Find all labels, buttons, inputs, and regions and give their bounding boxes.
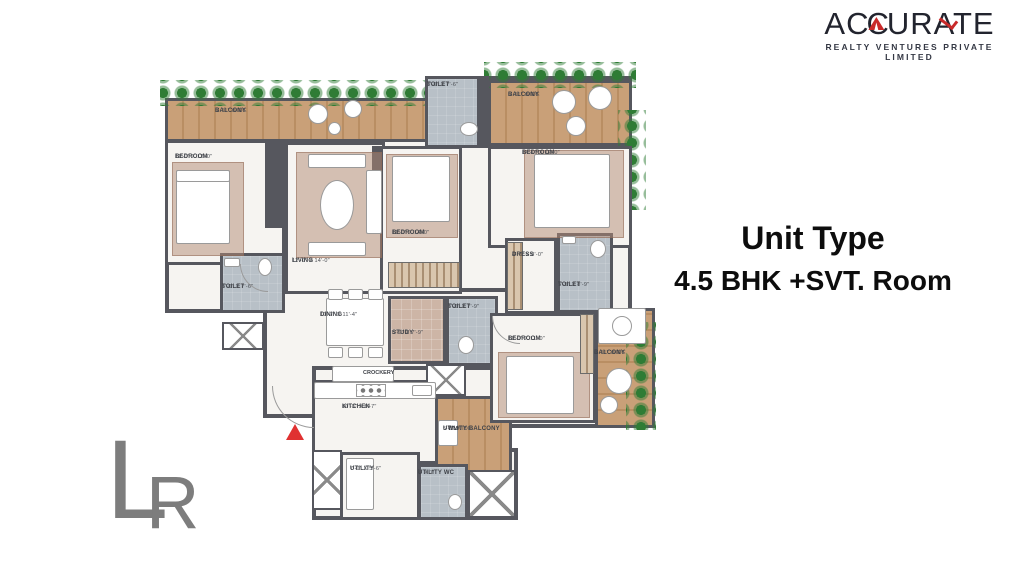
plants-top-left xyxy=(160,80,432,106)
balcony-chair xyxy=(600,396,618,414)
chair xyxy=(348,347,363,358)
bed-pillows xyxy=(176,170,230,182)
kitchen-sink xyxy=(412,385,432,396)
washbasin xyxy=(612,316,632,336)
unit-type-value: 4.5 BHK +SVT. Room xyxy=(660,265,966,297)
chair xyxy=(328,289,343,300)
stove xyxy=(356,384,386,397)
unit-type-block: Unit Type 4.5 BHK +SVT. Room xyxy=(660,220,966,297)
shaft-box xyxy=(222,322,264,350)
wc-fixture xyxy=(458,336,474,354)
balcony-chair xyxy=(588,86,612,110)
chair xyxy=(348,289,363,300)
wardrobe xyxy=(580,314,594,374)
wardrobe xyxy=(388,262,460,288)
chair xyxy=(368,347,383,358)
balcony-chair xyxy=(308,104,328,124)
door-swing xyxy=(272,386,314,428)
brand-logo: ACCURATE REALTY VENTURES PRIVATE LIMITED xyxy=(807,8,1012,62)
plants-top-right xyxy=(484,62,636,88)
balcony-chair xyxy=(552,90,576,114)
balcony-table xyxy=(328,122,341,135)
wc-fixture xyxy=(460,122,478,136)
unit-type-title: Unit Type xyxy=(660,220,966,257)
wall-pillar xyxy=(477,76,488,148)
wc-fixture xyxy=(590,240,606,258)
entry-arrow-icon xyxy=(286,424,304,440)
shaft-box xyxy=(468,470,516,518)
dining-table xyxy=(326,298,384,346)
brand-tagline: REALTY VENTURES PRIVATE LIMITED xyxy=(807,42,1012,62)
bed-furniture xyxy=(506,356,574,414)
bed-furniture xyxy=(534,154,610,228)
sofa xyxy=(308,154,366,168)
basin xyxy=(562,236,576,244)
shaft-box xyxy=(312,450,342,510)
floor-plan: BALCONY5'-11" WIDE BEDROOM11'-0" x 12'-0… xyxy=(160,58,662,538)
bed-furniture xyxy=(392,156,450,222)
brand-part-cc: CC xyxy=(846,6,887,41)
coffee-table xyxy=(320,180,354,230)
brand-part-a: A xyxy=(824,6,846,41)
balcony-table xyxy=(606,368,632,394)
wall-pillar xyxy=(265,142,285,228)
chair xyxy=(328,347,343,358)
sofa xyxy=(366,170,382,234)
balcony-chair xyxy=(344,100,362,118)
sofa xyxy=(308,242,366,256)
brand-name: ACCURATE xyxy=(824,8,994,41)
balcony-table xyxy=(566,116,586,136)
chair xyxy=(368,289,383,300)
basin xyxy=(224,258,240,267)
wc-fixture xyxy=(448,494,462,510)
brand-part-urate: URATE xyxy=(887,6,995,41)
